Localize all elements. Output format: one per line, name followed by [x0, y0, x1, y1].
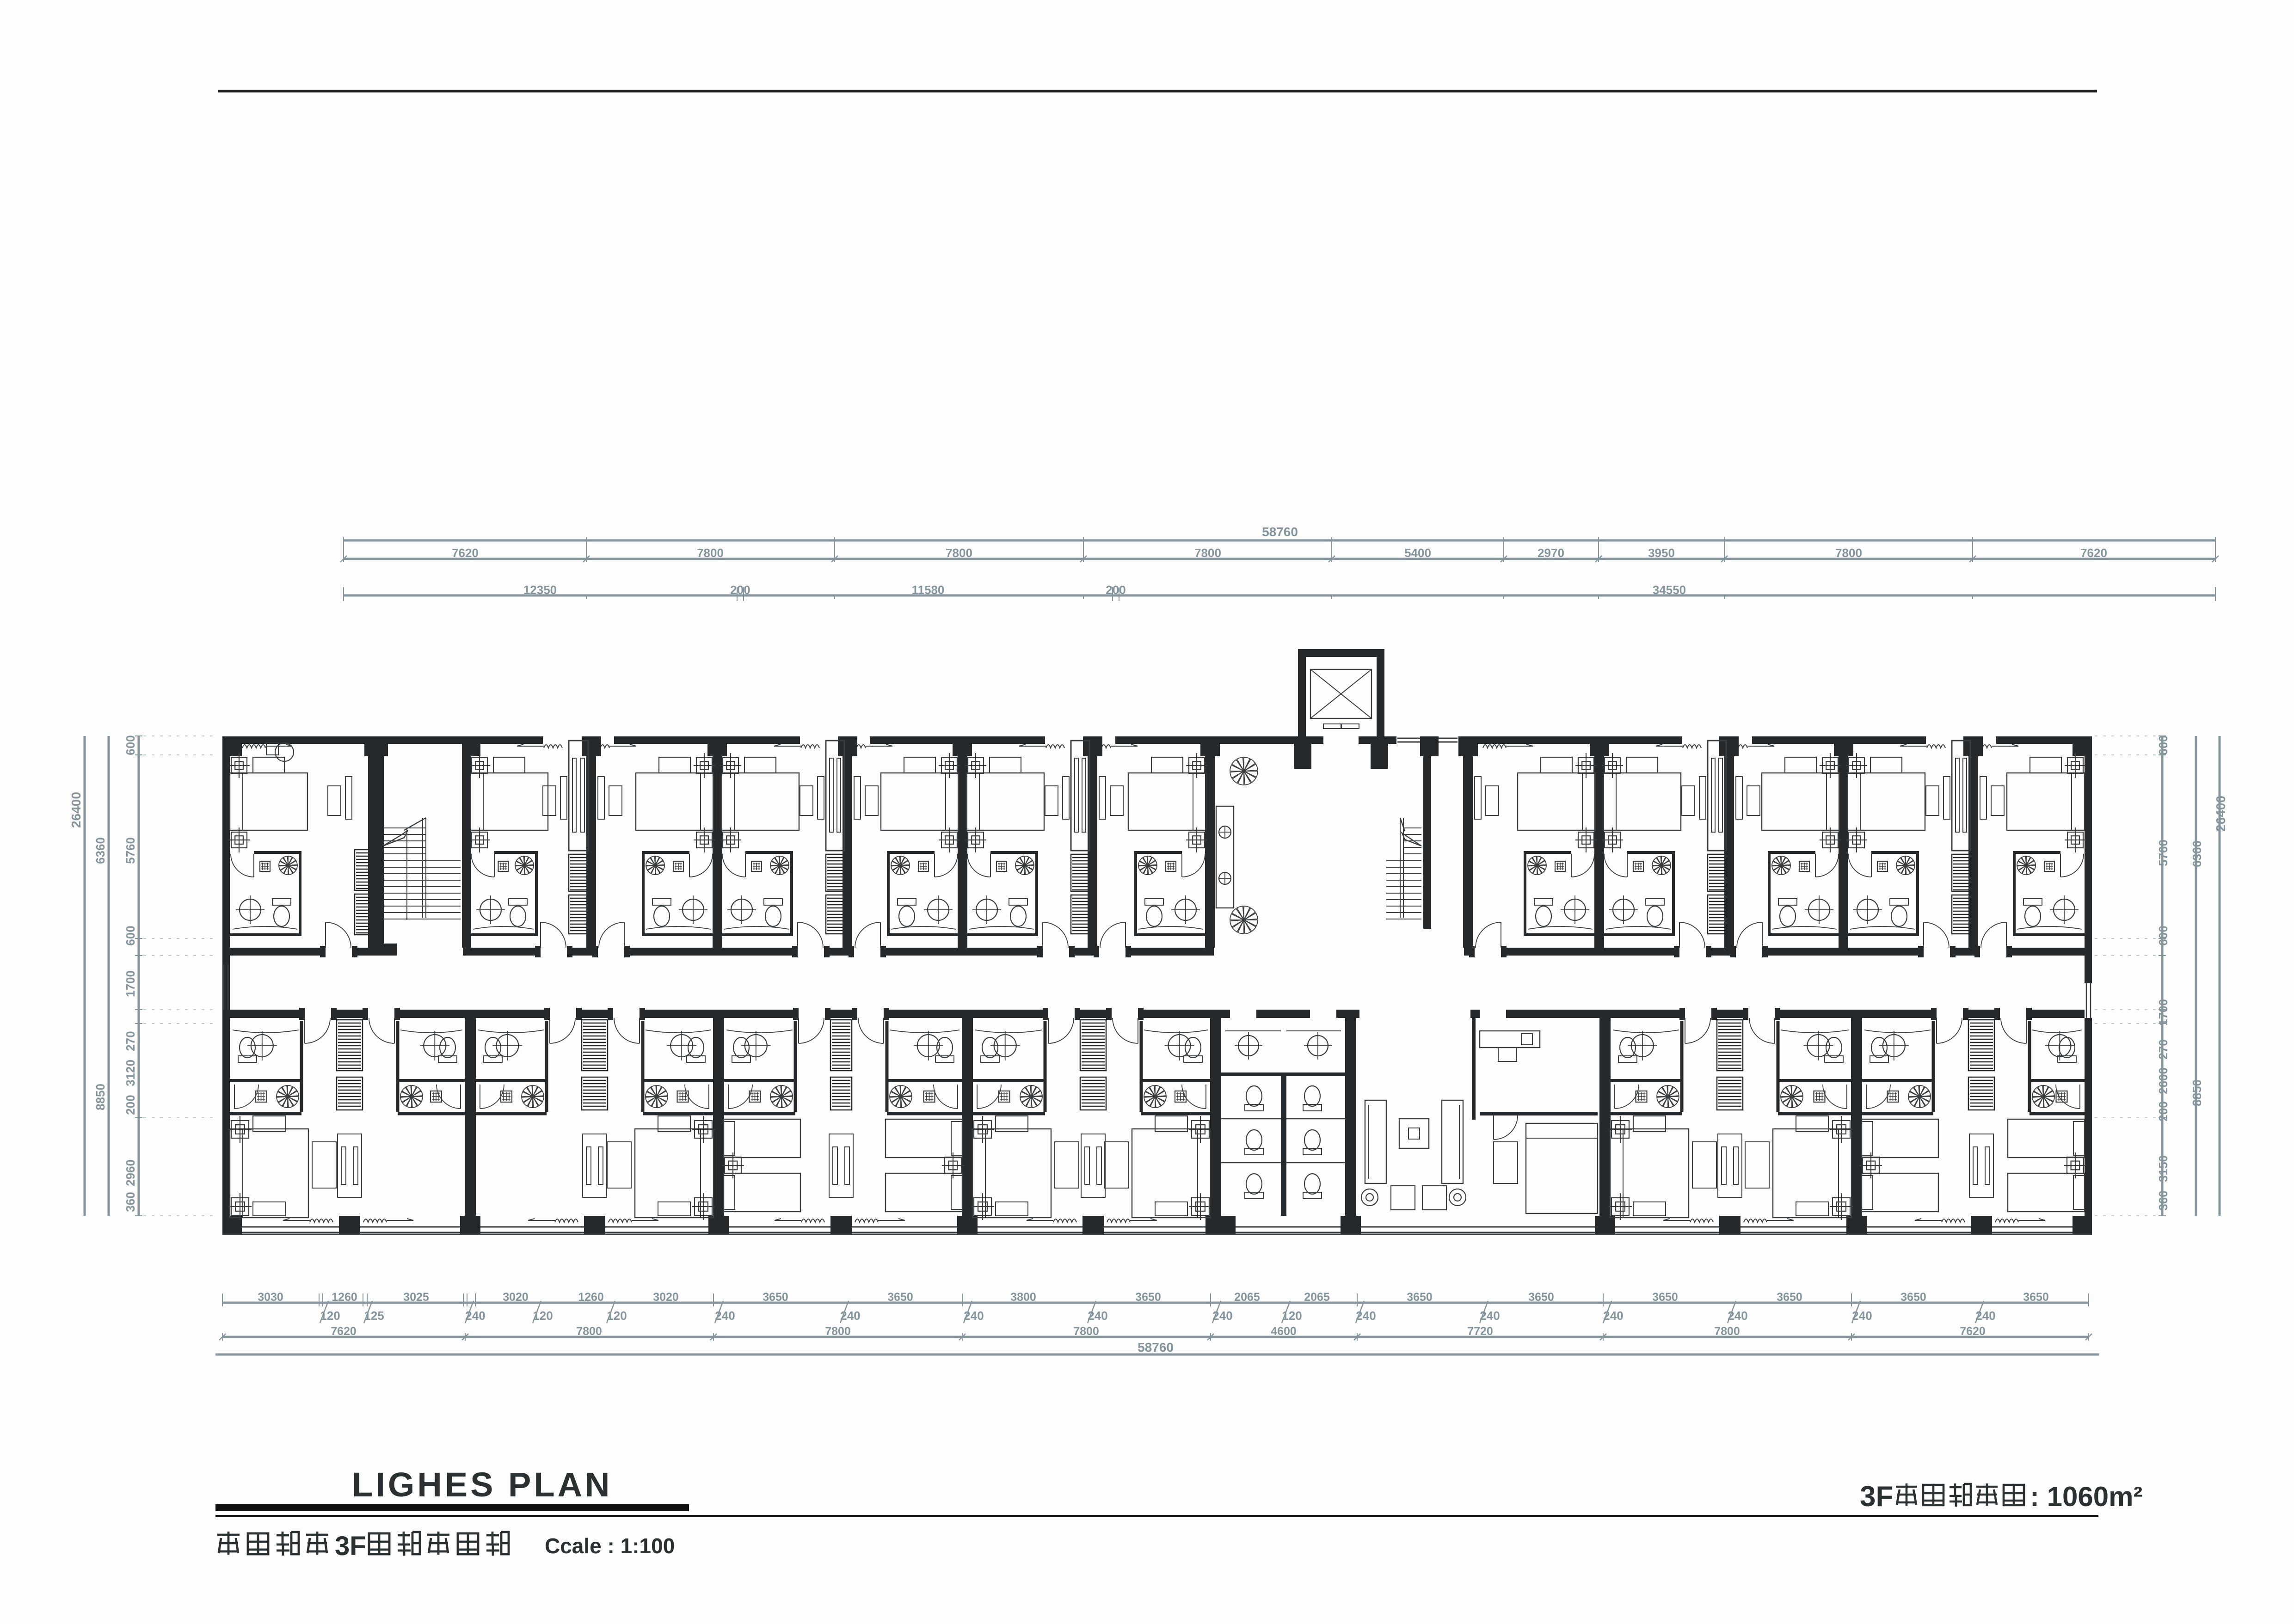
- svg-text:3650: 3650: [1777, 1291, 1802, 1304]
- svg-text:270: 270: [123, 1031, 137, 1051]
- svg-text:3800: 3800: [1010, 1291, 1036, 1304]
- svg-text:7800: 7800: [1073, 1325, 1099, 1338]
- svg-text:3650: 3650: [1652, 1291, 1678, 1304]
- svg-text:: 1060m²: : 1060m²: [2030, 1481, 2142, 1512]
- svg-text:4600: 4600: [1271, 1325, 1297, 1338]
- svg-text:1700: 1700: [2156, 999, 2170, 1026]
- svg-text:8850: 8850: [2190, 1079, 2204, 1106]
- svg-text:7620: 7620: [452, 546, 479, 560]
- svg-text:7720: 7720: [1467, 1325, 1493, 1338]
- svg-text:3F: 3F: [335, 1531, 366, 1561]
- svg-text:3650: 3650: [763, 1291, 788, 1304]
- svg-text:2960: 2960: [123, 1159, 137, 1186]
- svg-text:3F: 3F: [1860, 1481, 1893, 1513]
- svg-text:58760: 58760: [1138, 1340, 1174, 1354]
- svg-text:7800: 7800: [946, 546, 972, 560]
- svg-text:3120: 3120: [123, 1060, 137, 1086]
- svg-text:7800: 7800: [1714, 1325, 1740, 1338]
- svg-text:58760: 58760: [1262, 525, 1298, 539]
- svg-text:7620: 7620: [2080, 546, 2107, 560]
- svg-text:7800: 7800: [825, 1325, 851, 1338]
- svg-text:3650: 3650: [2023, 1291, 2049, 1304]
- svg-text:7800: 7800: [1194, 546, 1221, 560]
- svg-text:3650: 3650: [1528, 1291, 1554, 1304]
- svg-text:12350: 12350: [523, 583, 557, 597]
- svg-text:7620: 7620: [331, 1325, 357, 1338]
- svg-text:1700: 1700: [123, 970, 137, 997]
- svg-text:3150: 3150: [2156, 1155, 2170, 1182]
- svg-text:26400: 26400: [69, 792, 83, 828]
- svg-text:200: 200: [730, 583, 750, 597]
- svg-text:5760: 5760: [123, 837, 137, 864]
- svg-text:7800: 7800: [576, 1325, 602, 1338]
- svg-text:7620: 7620: [1960, 1325, 1986, 1338]
- svg-text:600: 600: [123, 925, 137, 945]
- svg-text:11580: 11580: [912, 583, 945, 597]
- svg-text:200: 200: [2156, 1101, 2170, 1121]
- svg-text:3030: 3030: [258, 1291, 283, 1304]
- svg-text:200: 200: [123, 1095, 137, 1115]
- svg-text:1260: 1260: [578, 1291, 604, 1304]
- svg-text:5760: 5760: [2156, 840, 2170, 866]
- svg-text:7800: 7800: [1835, 546, 1862, 560]
- svg-text:270: 270: [2156, 1039, 2170, 1059]
- svg-text:3020: 3020: [653, 1291, 679, 1304]
- svg-text:360: 360: [123, 1192, 137, 1212]
- svg-text:3950: 3950: [1648, 546, 1675, 560]
- svg-text:1260: 1260: [332, 1291, 357, 1304]
- svg-text:3025: 3025: [403, 1291, 429, 1304]
- svg-text:600: 600: [2156, 735, 2170, 755]
- svg-text:600: 600: [123, 735, 137, 755]
- svg-text:8850: 8850: [93, 1084, 107, 1110]
- svg-text:LIGHES PLAN: LIGHES PLAN: [352, 1465, 612, 1504]
- svg-text:3650: 3650: [1407, 1291, 1433, 1304]
- svg-text:5400: 5400: [1404, 546, 1431, 560]
- svg-text:26400: 26400: [2214, 796, 2228, 832]
- svg-text:3650: 3650: [1900, 1291, 1926, 1304]
- svg-text:6360: 6360: [2190, 840, 2204, 867]
- svg-text:2970: 2970: [1538, 546, 1564, 560]
- svg-text:2065: 2065: [1234, 1291, 1260, 1304]
- svg-text:Ccale : 1:100: Ccale : 1:100: [545, 1534, 675, 1558]
- svg-text:3650: 3650: [887, 1291, 913, 1304]
- svg-text:2600: 2600: [2156, 1067, 2170, 1094]
- svg-text:200: 200: [1106, 583, 1125, 597]
- svg-text:360: 360: [2156, 1190, 2170, 1210]
- svg-text:3020: 3020: [503, 1291, 529, 1304]
- svg-text:7800: 7800: [697, 546, 724, 560]
- svg-text:600: 600: [2156, 925, 2170, 945]
- svg-text:34550: 34550: [1653, 583, 1686, 597]
- svg-text:3650: 3650: [1135, 1291, 1161, 1304]
- svg-text:2065: 2065: [1304, 1291, 1330, 1304]
- svg-text:6360: 6360: [93, 837, 107, 864]
